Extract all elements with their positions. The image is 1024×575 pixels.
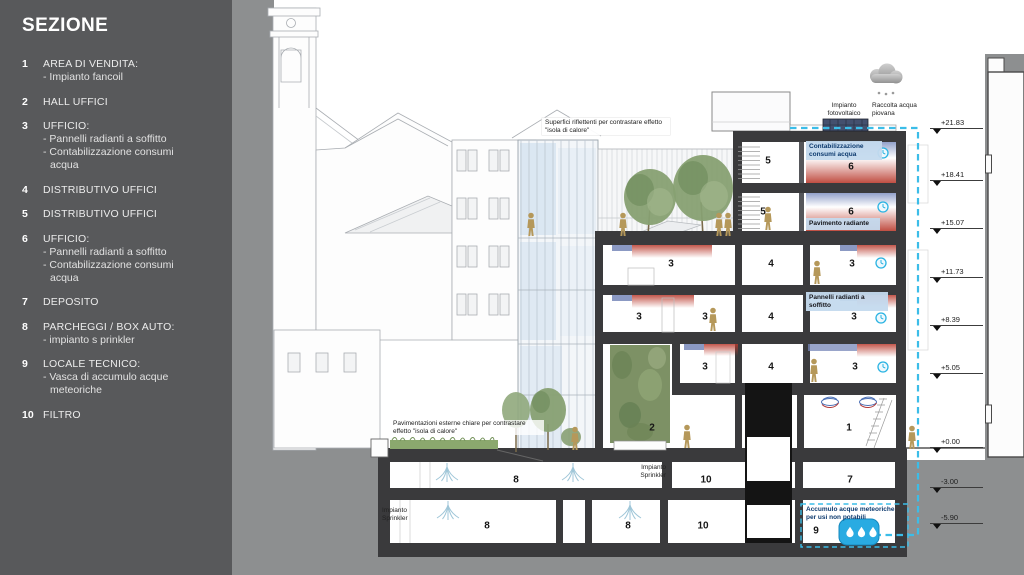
label-sprinkler-system-a: Impianto Sprinkler [616,464,666,479]
room-number: 7 [847,475,853,486]
label-water-metering: Contabilizzazione consumi acqua [806,141,882,160]
room-number: 4 [768,259,774,270]
green-wall [610,345,670,450]
room-number: 3 [851,312,857,323]
water-tank-icon [839,519,879,545]
room-number: 8 [625,521,631,532]
room-number: 4 [768,362,774,373]
legend-item-1: 1 AREA DI VENDITA: - Impianto fancoil [22,58,218,84]
legend-item-4: 4 DISTRIBUTIVO UFFICI [22,184,218,197]
elevation-triangle-icon [933,524,941,529]
elevation-marker: +5.05 [930,363,986,379]
context-building-right [986,58,1024,457]
elevation-marker: +21.83 [930,118,986,134]
elevation-marker: -3.00 [930,477,986,493]
room-number: 3 [702,312,708,323]
legend-item-2: 2 HALL UFFICI [22,96,218,109]
room-number: 2 [649,423,655,434]
room-number: 6 [848,207,854,218]
cloud-icon [870,64,903,96]
room-number: 10 [697,521,708,532]
room-number: 3 [852,362,858,373]
label-rainwater-storage: Accumulo acque meteoriche per usi non po… [806,506,906,521]
label-light-paving: Pavimentazioni esterne chiare per contra… [392,420,544,435]
room-number: 3 [668,259,674,270]
label-photovoltaic: Impianto fotovoltaico [818,102,870,117]
elevation-triangle-icon [933,448,941,453]
room-number: 1 [846,423,852,434]
legend-sidebar: SEZIONE 1 AREA DI VENDITA: - Impianto fa… [0,0,232,575]
elevation-marker: +8.39 [930,315,986,331]
elevator-core [745,383,792,543]
elevation-triangle-icon [933,181,941,186]
room-number: 6 [848,162,854,173]
elevation-triangle-icon [933,374,941,379]
room-number: 8 [513,475,519,486]
elevation-marker: +18.41 [930,170,986,186]
legend-item-9: 9 LOCALE TECNICO: - Vasca di accumulo ac… [22,358,218,397]
elevation-triangle-icon [933,278,941,283]
legend-item-6: 6 UFFICIO: - Pannelli radianti a soffitt… [22,233,218,285]
label-radiant-ceiling-panels: Pannelli radianti a soffitto [806,292,888,311]
elevation-triangle-icon [933,229,941,234]
room-number: 5 [765,156,771,167]
room-number: 9 [813,526,819,537]
legend-item-10: 10 FILTRO [22,409,218,422]
elevation-triangle-icon [933,326,941,331]
label-rainwater-collection: Raccolta acqua piovana [872,102,928,117]
room-number: 4 [768,312,774,323]
label-reflective-surfaces: Superfici riflettenti per contrastare ef… [542,118,670,135]
elevation-marker: -5.90 [930,513,986,529]
elevation-marker: +15.07 [930,218,986,234]
legend-item-7: 7 DEPOSITO [22,296,218,309]
room-number: 3 [636,312,642,323]
section-drawing-page: SEZIONE 1 AREA DI VENDITA: - Impianto fa… [0,0,1024,575]
legend-item-8: 8 PARCHEGGI / BOX AUTO: - impianto s pri… [22,321,218,347]
label-radiant-floor: Pavimento radiante [806,218,880,230]
room-number: 10 [700,475,711,486]
elevation-marker: +11.73 [930,267,986,283]
room-number: 8 [484,521,490,532]
elevation-triangle-icon [933,129,941,134]
room-number: 3 [849,259,855,270]
room-number: 5 [760,207,766,218]
legend-item-3: 3 UFFICIO: - Pannelli radianti a soffitt… [22,120,218,172]
label-sprinkler-system-b: Impianto Sprinkler [382,507,424,522]
legend-item-5: 5 DISTRIBUTIVO UFFICI [22,208,218,221]
elevation-marker: +0.00 [930,437,986,453]
page-title: SEZIONE [22,15,218,37]
solar-panel-icon [823,119,868,131]
fan-coil-icons [822,397,877,407]
elevation-triangle-icon [933,488,941,493]
room-number: 3 [702,362,708,373]
